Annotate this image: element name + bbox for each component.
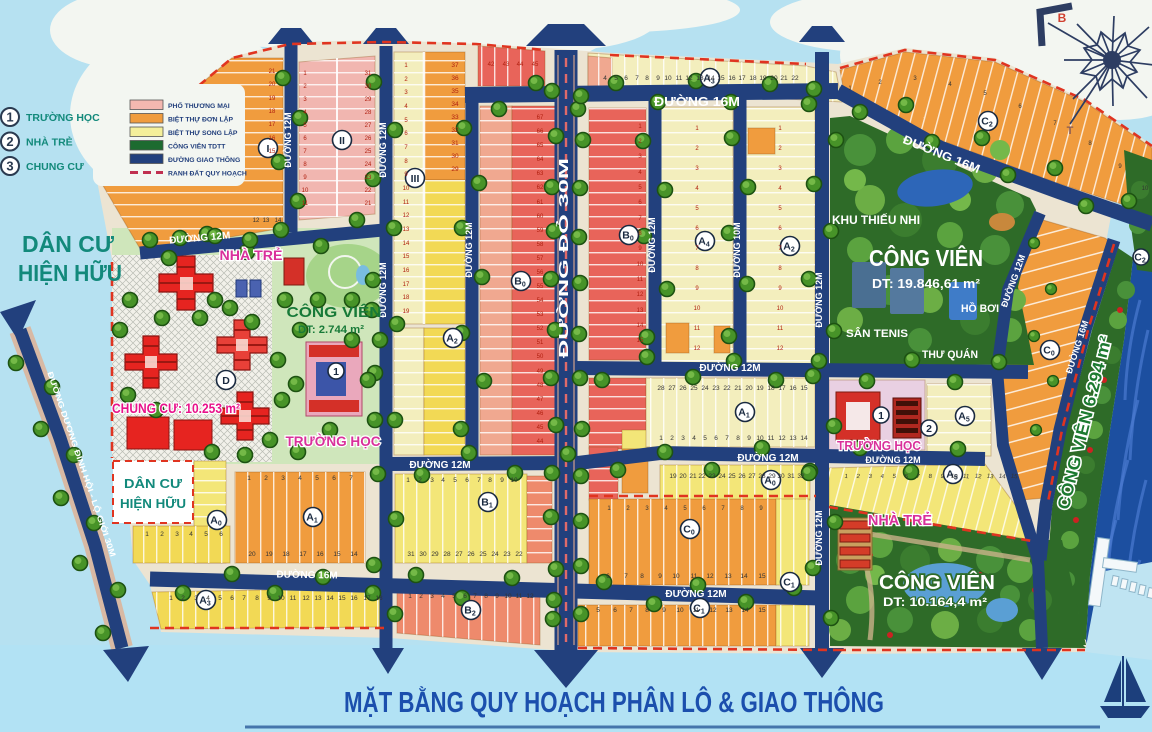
svg-text:23: 23 [708, 473, 716, 480]
svg-text:12: 12 [706, 573, 714, 580]
svg-text:ĐƯỜNG 12M: ĐƯỜNG 12M [813, 272, 824, 327]
svg-text:6: 6 [606, 573, 610, 580]
svg-text:9: 9 [747, 435, 751, 442]
svg-text:9: 9 [662, 607, 666, 614]
svg-text:19: 19 [269, 96, 276, 102]
svg-text:2: 2 [670, 435, 674, 442]
svg-text:6: 6 [463, 593, 467, 600]
svg-text:20: 20 [745, 385, 753, 392]
svg-text:5: 5 [703, 435, 707, 442]
svg-text:13: 13 [724, 573, 732, 580]
svg-text:TRƯỜNG HỌC: TRƯỜNG HỌC [837, 438, 922, 453]
svg-text:23: 23 [365, 175, 372, 181]
svg-text:11: 11 [676, 75, 683, 82]
svg-text:17: 17 [738, 75, 746, 82]
svg-text:ĐƯỜNG 12M: ĐƯỜNG 12M [282, 112, 293, 167]
svg-text:57: 57 [537, 256, 544, 262]
svg-text:14: 14 [740, 573, 748, 580]
svg-text:12: 12 [709, 607, 717, 614]
svg-text:22: 22 [791, 75, 799, 82]
svg-text:14: 14 [403, 241, 410, 247]
svg-text:16: 16 [316, 551, 324, 558]
svg-text:26: 26 [365, 136, 372, 142]
svg-text:DT: 19.846,61 m²: DT: 19.846,61 m² [872, 276, 981, 291]
svg-text:28: 28 [657, 385, 665, 392]
svg-text:14: 14 [637, 323, 644, 329]
svg-text:15: 15 [758, 573, 766, 580]
svg-text:49: 49 [537, 369, 544, 375]
svg-text:D: D [222, 375, 230, 387]
svg-text:7: 7 [725, 435, 729, 442]
svg-text:11: 11 [691, 573, 698, 580]
svg-text:4: 4 [206, 595, 210, 602]
svg-text:3: 3 [430, 477, 434, 484]
svg-text:32: 32 [451, 127, 459, 134]
svg-text:19: 19 [759, 75, 767, 82]
svg-text:7: 7 [624, 573, 628, 580]
svg-text:9: 9 [656, 75, 660, 82]
svg-text:ĐƯỜNG 10M: ĐƯỜNG 10M [731, 222, 742, 277]
svg-text:66: 66 [537, 129, 544, 135]
svg-text:2: 2 [181, 595, 185, 602]
svg-text:2: 2 [419, 593, 423, 600]
svg-text:21: 21 [269, 69, 276, 75]
svg-text:60: 60 [537, 214, 544, 220]
svg-text:ĐƯỜNG 12M: ĐƯỜNG 12M [865, 454, 920, 465]
svg-text:DÂN CƯ: DÂN CƯ [22, 230, 115, 257]
svg-text:11: 11 [693, 607, 700, 614]
svg-text:28: 28 [443, 551, 451, 558]
svg-text:DT: 10.164,4 m²: DT: 10.164,4 m² [883, 595, 987, 609]
svg-text:10: 10 [403, 186, 410, 192]
svg-text:7: 7 [635, 75, 639, 82]
svg-text:25: 25 [365, 149, 372, 155]
svg-text:10: 10 [664, 75, 672, 82]
svg-text:9: 9 [658, 573, 662, 580]
svg-text:31: 31 [365, 71, 372, 77]
svg-text:42: 42 [488, 62, 495, 68]
svg-text:ĐƯỜNG 12M: ĐƯỜNG 12M [463, 222, 474, 277]
svg-text:2: 2 [926, 423, 932, 435]
svg-text:10: 10 [777, 306, 784, 312]
svg-text:4: 4 [189, 531, 193, 538]
svg-text:48: 48 [537, 383, 544, 389]
svg-text:HIỆN HỮU: HIỆN HỮU [120, 496, 186, 511]
svg-text:6: 6 [465, 477, 469, 484]
svg-text:18: 18 [767, 385, 775, 392]
svg-text:7: 7 [349, 475, 353, 482]
svg-text:5: 5 [315, 475, 319, 482]
svg-text:13: 13 [789, 435, 797, 442]
svg-text:1: 1 [406, 477, 410, 484]
svg-text:50: 50 [537, 354, 544, 360]
svg-text:7: 7 [242, 595, 246, 602]
svg-text:59: 59 [537, 228, 544, 234]
svg-text:6: 6 [332, 475, 336, 482]
svg-text:10: 10 [676, 607, 684, 614]
svg-text:25: 25 [728, 473, 736, 480]
svg-text:HỒ BƠI: HỒ BƠI [961, 302, 999, 315]
svg-text:20: 20 [770, 75, 778, 82]
svg-text:30: 30 [777, 473, 785, 480]
svg-text:25: 25 [479, 551, 487, 558]
svg-text:15: 15 [717, 75, 725, 82]
svg-text:CHUNG CƯ: CHUNG CƯ [26, 161, 84, 173]
svg-text:11: 11 [694, 326, 701, 332]
svg-text:5: 5 [204, 531, 208, 538]
svg-text:ĐƯỜNG 12M: ĐƯỜNG 12M [699, 361, 760, 374]
svg-text:1: 1 [169, 595, 173, 602]
svg-text:12: 12 [778, 435, 786, 442]
svg-text:45: 45 [537, 425, 544, 431]
svg-text:10: 10 [637, 262, 644, 268]
svg-text:CÔNG VIÊN TDTT: CÔNG VIÊN TDTT [168, 142, 226, 151]
svg-text:31: 31 [407, 551, 415, 558]
svg-text:19: 19 [265, 551, 273, 558]
svg-text:29: 29 [365, 97, 372, 103]
svg-text:12: 12 [637, 292, 644, 298]
svg-text:13: 13 [314, 595, 322, 602]
svg-text:18: 18 [749, 75, 757, 82]
svg-text:11: 11 [637, 277, 644, 283]
svg-text:5: 5 [452, 593, 456, 600]
svg-text:34: 34 [451, 101, 459, 108]
svg-text:13: 13 [725, 607, 733, 614]
svg-text:43: 43 [503, 62, 510, 68]
svg-text:27: 27 [365, 123, 372, 129]
svg-text:3: 3 [281, 475, 285, 482]
svg-text:15: 15 [269, 149, 276, 155]
svg-text:8: 8 [484, 593, 488, 600]
svg-text:ĐƯỜNG 12M: ĐƯỜNG 12M [409, 458, 470, 471]
svg-text:II: II [339, 135, 345, 147]
svg-text:5: 5 [218, 595, 222, 602]
svg-text:NHÀ TRẺ: NHÀ TRẺ [26, 136, 73, 149]
svg-text:DT: 2.744 m²: DT: 2.744 m² [298, 324, 364, 336]
svg-text:15: 15 [403, 254, 410, 260]
svg-text:ĐƯỜNG 16M: ĐƯỜNG 16M [276, 567, 337, 581]
svg-text:24: 24 [491, 551, 499, 558]
svg-text:27: 27 [455, 551, 463, 558]
svg-text:44: 44 [537, 439, 544, 445]
svg-text:22: 22 [723, 385, 731, 392]
svg-text:15: 15 [758, 607, 766, 614]
svg-text:4: 4 [441, 593, 445, 600]
svg-text:18: 18 [269, 109, 276, 115]
svg-text:11: 11 [777, 326, 784, 332]
svg-text:21: 21 [689, 473, 697, 480]
svg-text:3: 3 [194, 595, 198, 602]
svg-text:31: 31 [787, 473, 795, 480]
svg-text:16: 16 [728, 75, 736, 82]
svg-text:65: 65 [537, 143, 544, 149]
svg-text:BIỆT THỰ ĐƠN LẬP: BIỆT THỰ ĐƠN LẬP [168, 115, 234, 124]
svg-text:22: 22 [365, 188, 372, 194]
svg-text:6: 6 [624, 75, 628, 82]
svg-text:12: 12 [302, 595, 310, 602]
svg-text:9: 9 [495, 593, 499, 600]
svg-text:16: 16 [789, 385, 797, 392]
svg-text:19: 19 [403, 309, 410, 315]
svg-text:17: 17 [299, 551, 307, 558]
svg-text:29: 29 [431, 551, 439, 558]
svg-text:10: 10 [510, 477, 518, 484]
svg-text:12: 12 [253, 218, 260, 224]
svg-text:2: 2 [264, 475, 268, 482]
svg-text:ĐƯỜNG 12M: ĐƯỜNG 12M [665, 587, 726, 600]
svg-text:15: 15 [333, 551, 341, 558]
svg-text:3: 3 [6, 159, 13, 174]
svg-text:7: 7 [477, 477, 481, 484]
svg-text:HIỆN HỮU: HIỆN HỮU [18, 259, 122, 286]
svg-text:64: 64 [537, 157, 544, 163]
svg-text:NHÀ TRẺ: NHÀ TRẺ [868, 512, 932, 529]
svg-text:1: 1 [333, 366, 339, 378]
svg-text:58: 58 [537, 242, 544, 248]
svg-text:28: 28 [365, 110, 372, 116]
svg-text:24: 24 [701, 385, 709, 392]
svg-text:21: 21 [365, 201, 372, 207]
svg-text:12: 12 [694, 346, 701, 352]
svg-text:15: 15 [637, 338, 644, 344]
svg-text:6: 6 [714, 435, 718, 442]
svg-text:ĐƯỜNG 12M: ĐƯỜNG 12M [377, 122, 388, 177]
svg-text:11: 11 [302, 201, 309, 207]
svg-text:6: 6 [613, 607, 617, 614]
svg-text:24: 24 [365, 162, 372, 168]
svg-text:6: 6 [219, 531, 223, 538]
svg-text:2: 2 [418, 477, 422, 484]
svg-text:16: 16 [350, 595, 358, 602]
svg-text:10: 10 [1142, 186, 1149, 192]
svg-text:14: 14 [707, 75, 715, 82]
svg-text:4: 4 [298, 475, 302, 482]
svg-text:5: 5 [453, 477, 457, 484]
svg-text:10: 10 [277, 595, 285, 602]
svg-text:33: 33 [451, 114, 459, 121]
svg-text:16: 16 [269, 136, 276, 142]
svg-text:1: 1 [145, 531, 149, 538]
svg-text:13: 13 [403, 227, 410, 233]
svg-text:55: 55 [537, 284, 544, 290]
svg-text:CÔNG VIÊN: CÔNG VIÊN [869, 244, 983, 271]
svg-text:MẶT BẰNG QUY HOẠCH PHÂN LÔ & G: MẶT BẰNG QUY HOẠCH PHÂN LÔ & GIAO THÔNG [344, 685, 884, 719]
svg-text:8: 8 [645, 75, 649, 82]
svg-text:15: 15 [800, 385, 808, 392]
svg-text:12: 12 [685, 75, 693, 82]
svg-text:14: 14 [326, 595, 334, 602]
svg-text:13: 13 [263, 218, 270, 224]
svg-text:10: 10 [756, 435, 764, 442]
svg-text:9: 9 [267, 595, 271, 602]
svg-text:7: 7 [473, 593, 477, 600]
svg-text:12: 12 [526, 593, 534, 600]
svg-text:15: 15 [338, 595, 346, 602]
svg-text:24: 24 [718, 473, 726, 480]
svg-text:12: 12 [403, 213, 410, 219]
svg-text:32: 32 [797, 473, 805, 480]
svg-text:53: 53 [537, 312, 544, 318]
svg-text:14: 14 [741, 607, 749, 614]
svg-text:1: 1 [408, 593, 412, 600]
svg-text:ĐƯỜNG 12M: ĐƯỜNG 12M [813, 510, 824, 565]
svg-text:26: 26 [467, 551, 475, 558]
svg-text:29: 29 [451, 166, 459, 173]
svg-text:30: 30 [365, 84, 372, 90]
svg-text:26: 26 [738, 473, 746, 480]
svg-text:3: 3 [681, 435, 685, 442]
svg-text:6: 6 [230, 595, 234, 602]
svg-text:10: 10 [302, 188, 309, 194]
svg-text:1: 1 [878, 410, 884, 422]
svg-text:22: 22 [698, 473, 706, 480]
svg-text:19: 19 [756, 385, 764, 392]
svg-text:NHÀ TRẺ: NHÀ TRẺ [220, 247, 283, 263]
svg-text:52: 52 [537, 326, 544, 332]
svg-text:ĐƯỜNG GIAO THÔNG: ĐƯỜNG GIAO THÔNG [168, 155, 240, 164]
svg-text:25: 25 [690, 385, 698, 392]
svg-text:27: 27 [748, 473, 756, 480]
svg-text:23: 23 [503, 551, 511, 558]
svg-text:12: 12 [777, 346, 784, 352]
svg-text:67: 67 [537, 115, 544, 121]
svg-text:BIỆT THỰ SONG LẬP: BIỆT THỰ SONG LẬP [168, 128, 238, 137]
svg-text:4: 4 [692, 435, 696, 442]
svg-text:51: 51 [537, 340, 544, 346]
svg-text:26: 26 [679, 385, 687, 392]
svg-text:56: 56 [537, 270, 544, 276]
svg-text:20: 20 [248, 551, 256, 558]
svg-text:ĐƯỜNG 12M: ĐƯỜNG 12M [737, 451, 798, 464]
svg-text:3: 3 [175, 531, 179, 538]
svg-text:11: 11 [516, 593, 523, 600]
svg-text:31: 31 [451, 140, 459, 147]
svg-text:ĐƯỜNG 16M: ĐƯỜNG 16M [654, 94, 740, 109]
svg-text:14: 14 [350, 551, 358, 558]
svg-text:16: 16 [403, 268, 410, 274]
svg-text:62: 62 [537, 185, 544, 191]
svg-text:30: 30 [451, 153, 459, 160]
svg-text:30: 30 [419, 551, 427, 558]
svg-text:KHU THIẾU NHI: KHU THIẾU NHI [832, 212, 920, 227]
svg-text:8: 8 [645, 607, 649, 614]
svg-text:36: 36 [451, 75, 459, 82]
svg-text:2: 2 [6, 134, 13, 149]
svg-text:46: 46 [537, 411, 544, 417]
svg-text:10: 10 [694, 306, 701, 312]
svg-text:61: 61 [537, 200, 544, 206]
svg-text:27: 27 [668, 385, 676, 392]
svg-text:1: 1 [247, 475, 251, 482]
svg-text:23: 23 [712, 385, 720, 392]
svg-text:19: 19 [669, 473, 677, 480]
svg-text:11: 11 [290, 595, 297, 602]
svg-text:T: T [1067, 125, 1074, 137]
svg-text:13: 13 [637, 308, 644, 314]
svg-text:17: 17 [363, 595, 371, 602]
svg-text:TRƯỜNG HỌC: TRƯỜNG HỌC [26, 111, 100, 124]
svg-text:28: 28 [758, 473, 766, 480]
svg-text:2: 2 [160, 531, 164, 538]
svg-text:35: 35 [451, 88, 459, 95]
svg-text:ĐƯỜNG ĐỎ 30M: ĐƯỜNG ĐỎ 30M [556, 158, 571, 358]
svg-text:SÂN TENIS: SÂN TENIS [846, 327, 908, 340]
svg-text:1: 1 [659, 435, 663, 442]
svg-text:7: 7 [629, 607, 633, 614]
svg-text:10: 10 [672, 573, 680, 580]
svg-text:29: 29 [768, 473, 776, 480]
svg-text:1: 1 [6, 110, 13, 125]
svg-text:9: 9 [500, 477, 504, 484]
svg-text:TRƯỜNG HỌC: TRƯỜNG HỌC [286, 432, 381, 449]
svg-text:THƯ QUÁN: THƯ QUÁN [922, 348, 978, 361]
svg-text:8: 8 [255, 595, 259, 602]
svg-text:22: 22 [515, 551, 523, 558]
svg-text:21: 21 [734, 385, 742, 392]
svg-text:18: 18 [282, 551, 290, 558]
svg-text:20: 20 [679, 473, 687, 480]
svg-text:63: 63 [537, 171, 544, 177]
svg-text:ĐƯỜNG 12M: ĐƯỜNG 12M [646, 217, 657, 272]
svg-text:17: 17 [403, 282, 410, 288]
svg-text:17: 17 [269, 122, 276, 128]
svg-text:5: 5 [596, 607, 600, 614]
svg-text:B: B [1058, 11, 1067, 25]
svg-text:44: 44 [517, 62, 524, 68]
svg-text:17: 17 [778, 385, 786, 392]
svg-text:20: 20 [269, 82, 276, 88]
svg-text:8: 8 [488, 477, 492, 484]
svg-text:14: 14 [800, 435, 808, 442]
svg-text:CHUNG CƯ: 10.253 m²: CHUNG CƯ: 10.253 m² [112, 400, 240, 416]
svg-text:47: 47 [537, 397, 544, 403]
svg-text:III: III [411, 173, 420, 185]
svg-text:14: 14 [275, 218, 282, 224]
svg-text:4: 4 [441, 477, 445, 484]
svg-text:18: 18 [403, 295, 410, 301]
svg-text:11: 11 [403, 200, 410, 206]
svg-text:45: 45 [532, 62, 539, 68]
svg-text:8: 8 [736, 435, 740, 442]
svg-text:DÂN CƯ: DÂN CƯ [124, 476, 183, 491]
svg-text:54: 54 [537, 298, 544, 304]
svg-text:CÔNG VIÊN: CÔNG VIÊN [879, 570, 995, 594]
svg-text:5: 5 [614, 75, 618, 82]
svg-text:21: 21 [780, 75, 788, 82]
svg-text:37: 37 [451, 62, 459, 69]
svg-text:13: 13 [696, 75, 704, 82]
svg-text:18: 18 [375, 595, 383, 602]
svg-text:8: 8 [640, 573, 644, 580]
svg-text:CÔNG VIÊN: CÔNG VIÊN [287, 303, 382, 321]
svg-text:3: 3 [430, 593, 434, 600]
svg-text:11: 11 [768, 435, 775, 442]
svg-text:4: 4 [603, 75, 607, 82]
svg-text:10: 10 [504, 593, 512, 600]
